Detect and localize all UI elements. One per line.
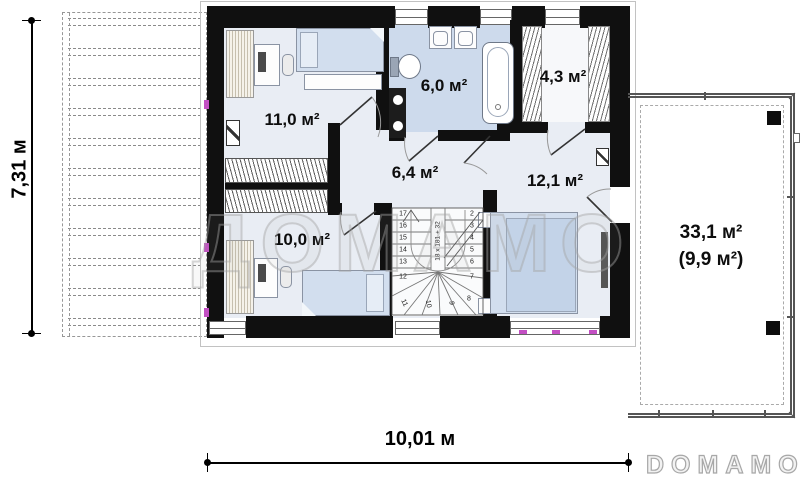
room-label-terrace-total: 33,1 м²: [680, 222, 743, 244]
room-label-bathroom: 6,0 м²: [421, 76, 468, 96]
watermark-text: ДОМАМО: [192, 203, 587, 285]
door-leaf-bedroom-top: [340, 97, 372, 125]
door-leaf-closet: [551, 129, 585, 155]
room-label-closet: 4,3 м²: [540, 67, 587, 87]
room-label-hall: 6,4 м²: [392, 163, 439, 183]
dimension-line: [207, 462, 628, 464]
brand-logo: DOMAMO: [646, 451, 800, 480]
terrace-corner-miters: [789, 93, 795, 418]
dimension-tick: [207, 453, 208, 472]
dimension-tick: [628, 453, 629, 472]
room-label-bedroom-right: 12,1 м²: [527, 171, 583, 191]
stair-step-number: 10: [424, 300, 432, 309]
door-leaf-bathroom: [409, 136, 438, 161]
stair-step-number: 9: [448, 301, 455, 305]
room-label-bedroom-top-left: 11,0 м²: [264, 110, 319, 130]
stair-step-number: 8: [467, 296, 471, 303]
floor-plan-canvas: 7,31 м: [0, 0, 800, 480]
room-label-terrace-usable: (9,9 м²): [679, 249, 744, 271]
dimension-horizontal-label: 10,01 м: [385, 428, 455, 451]
door-leaf-bedroom-right: [464, 136, 490, 163]
